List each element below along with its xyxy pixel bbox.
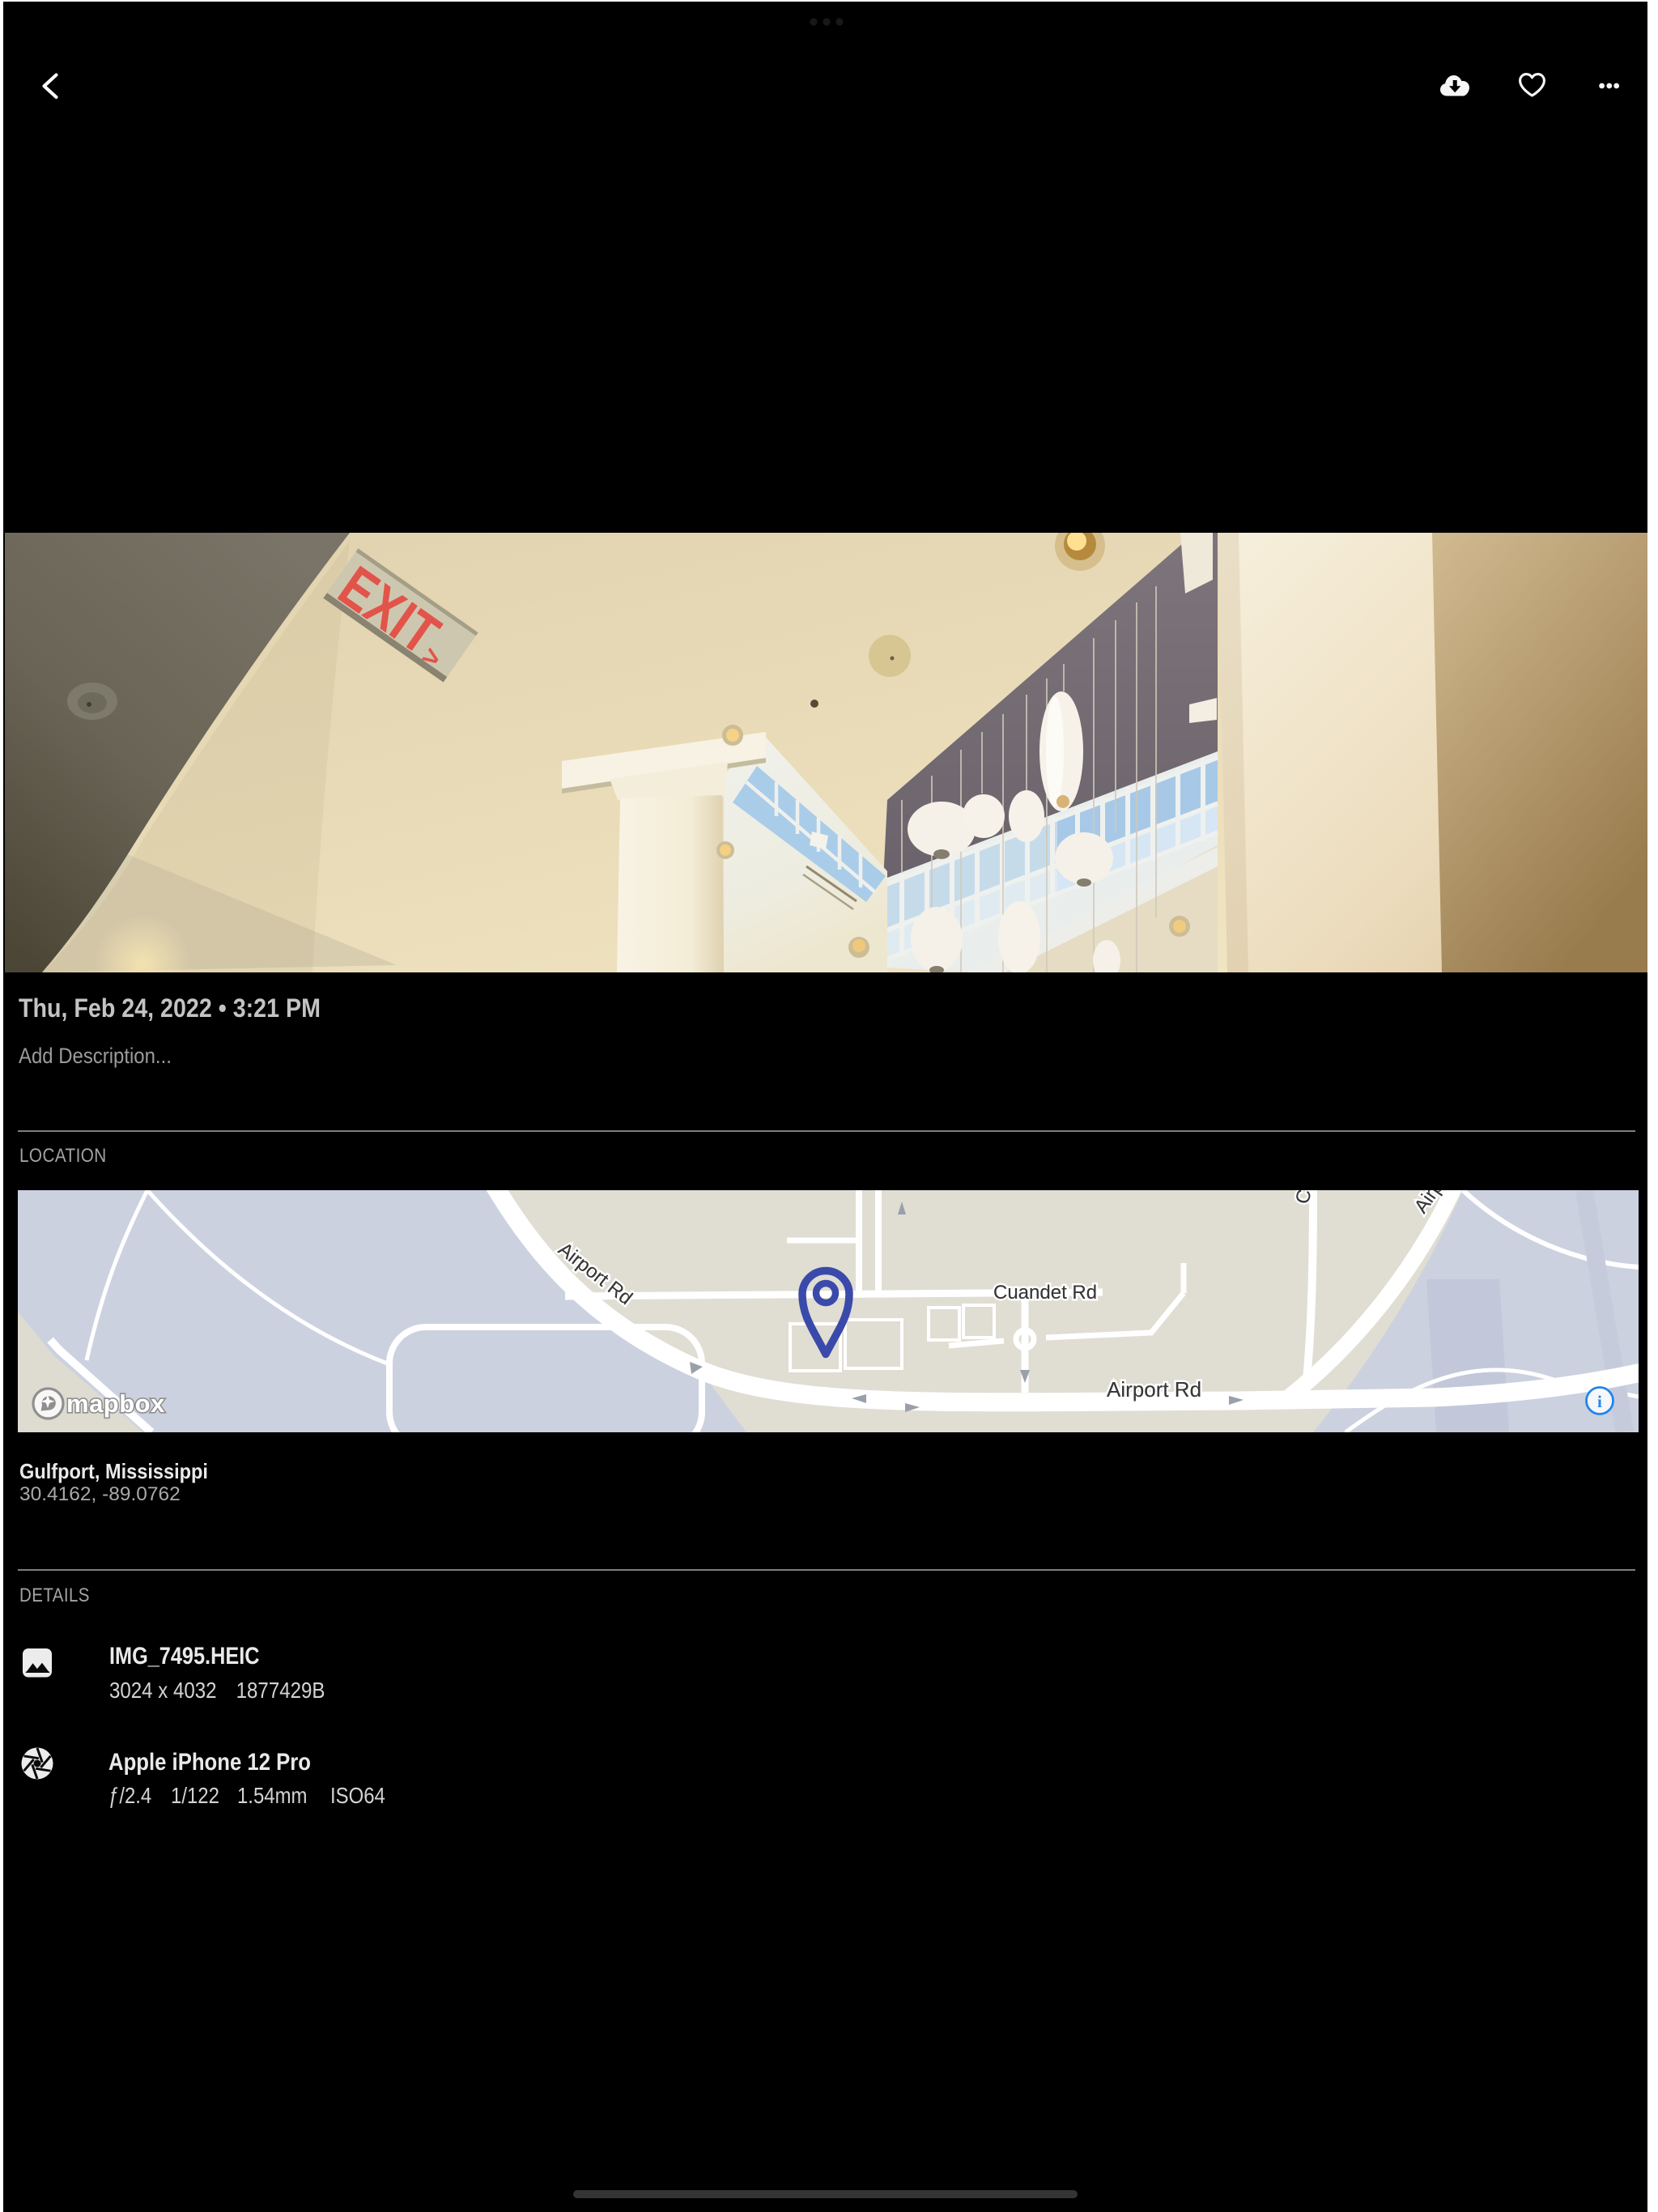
svg-text:mapbox: mapbox	[66, 1389, 165, 1418]
svg-text:i: i	[1597, 1392, 1602, 1411]
svg-text:Cuandet Rd: Cuandet Rd	[993, 1282, 1097, 1304]
svg-text:Airport Rd: Airport Rd	[1107, 1377, 1201, 1402]
